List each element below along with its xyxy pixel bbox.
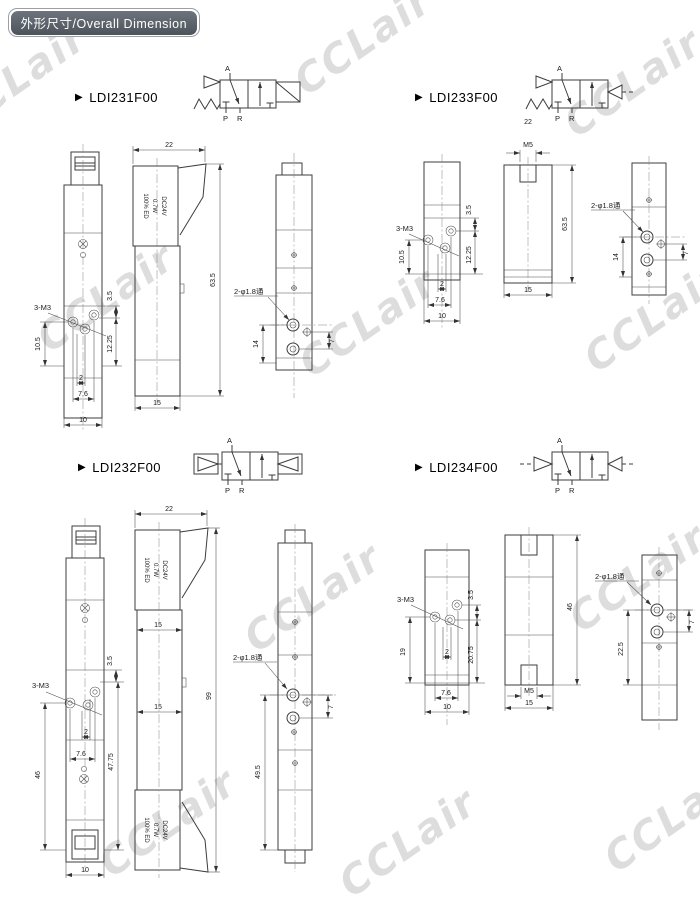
dim-hole-offset: 3.5: [468, 590, 475, 600]
dim-height-total: 99: [206, 692, 213, 700]
dim-width-front: 10: [443, 704, 451, 711]
coil-power: 0.7W: [151, 199, 157, 213]
dim-port-span: 14: [613, 253, 620, 261]
coil-label: DC24V 0.7W 100% ED: [142, 193, 166, 219]
dim-hole-offset: 3.5: [466, 205, 473, 215]
valve-body: [552, 445, 608, 485]
bullet-triangle-icon: ▶: [78, 463, 86, 473]
dim-mount-thread: 3-M3: [396, 224, 413, 233]
dim-mount-left: 10.5: [35, 337, 42, 351]
dim-pilot-thread: M5: [524, 688, 534, 695]
dim-port-note: 2-φ1.8通: [234, 286, 264, 296]
dim-height-total: 63.5: [562, 217, 569, 231]
coil-voltage: DC24V: [161, 820, 167, 839]
pilot-spring-actuator: [526, 76, 552, 109]
side-view: M5 63.5 15: [504, 142, 576, 298]
dim-hole-gap: 2: [440, 281, 444, 288]
model-label-ldi234f00: ▶ LDI234F00: [415, 460, 498, 475]
pilot-spring-actuator: [194, 76, 220, 109]
bullet-triangle-icon: ▶: [415, 93, 423, 103]
dim-width-top: 22: [524, 119, 532, 126]
dim-hole-gap: 2: [445, 649, 449, 656]
coil-duty: 100% ED: [143, 557, 149, 583]
coil-voltage: DC24V: [160, 196, 166, 215]
port-p-label: P: [555, 486, 560, 495]
dim-width-front: 10: [81, 867, 89, 874]
dim-mount-right: 12.25: [107, 335, 114, 353]
port-p-label: P: [225, 486, 230, 495]
side-view: 22 DC24V 0.7W 100% ED 15 15 DC24V 0.7W 1…: [135, 506, 220, 878]
dim-mount-right: 12.25: [466, 246, 473, 264]
solenoid-pilot-actuator-right: [278, 454, 302, 474]
dim-port-gap: 7: [689, 620, 696, 624]
coil-duty: 100% ED: [143, 817, 149, 843]
port-r-label: R: [569, 486, 575, 495]
front-view: 3-M3 3.5 2 7.6 46 47.75 10: [32, 518, 124, 878]
port-r-label: R: [239, 486, 245, 495]
coil-power: 0.7W: [152, 563, 158, 577]
dim-mount-right: 47.75: [108, 753, 115, 771]
dim-mount-thread: 3-M3: [34, 303, 51, 312]
dim-hole-gap: 2: [79, 375, 83, 382]
dim-port-gap: 7: [329, 339, 336, 343]
dim-depth: 15: [153, 400, 161, 407]
front-view: 3-M3 3.5 10.5 12.25 2 7.6 10: [396, 154, 483, 330]
solenoid-actuator: [276, 82, 300, 102]
bullet-triangle-icon: ▶: [415, 463, 423, 473]
dim-port-gap: 7: [328, 705, 335, 709]
dim-mount-left: 19: [400, 648, 407, 656]
dim-hole-offset: 3.5: [107, 656, 114, 666]
dim-mount-right: 20.75: [468, 646, 475, 664]
coil-duty: 100% ED: [142, 193, 148, 219]
model-name: LDI233F00: [429, 90, 498, 105]
valve-body: [220, 73, 276, 113]
model-label-ldi232f00: ▶ LDI232F00: [78, 460, 161, 475]
dim-mount-left: 46: [35, 771, 42, 779]
bottom-port-view: 2-φ1.8通 14 7: [234, 153, 336, 398]
front-view: 3-M3 3.5 19 20.75 2 7.6 10: [397, 543, 485, 725]
dim-width-front: 10: [79, 417, 87, 424]
model-label-ldi231f00: ▶ LDI231F00: [75, 90, 158, 105]
dim-depth-lower: 15: [154, 704, 162, 711]
air-pilot-actuator: [608, 85, 636, 99]
dim-height-total: 63.5: [210, 273, 217, 287]
drawing-ldi234f00: 3-M3 3.5 19 20.75 2 7.6 10: [395, 525, 700, 760]
drawing-ldi232f00: 3-M3 3.5 2 7.6 46 47.75 10 22: [28, 500, 373, 900]
dim-hole-span: 7.6: [435, 297, 445, 304]
dim-depth: 15: [524, 287, 532, 294]
dim-port-span: 49.5: [255, 765, 262, 779]
dim-mount-thread: 3-M3: [397, 595, 414, 604]
dim-width-front: 10: [438, 313, 446, 320]
coil-label-lower: DC24V 0.7W 100% ED: [143, 817, 167, 843]
drawing-ldi231f00: 3-M3 3.5 10.5 12.25 2 7.6 10 22: [28, 138, 373, 438]
dim-depth-upper: 15: [154, 622, 162, 629]
valve-symbol-ldi231f00: A P R: [180, 66, 312, 124]
section-header-label: 外形尺寸/Overall Dimension: [11, 11, 198, 35]
bottom-port-view: 2-φ1.8通 7 22.5: [595, 547, 696, 730]
air-pilot-actuator-right: [608, 457, 636, 471]
dim-hole-offset: 3.5: [107, 291, 114, 301]
dim-port-span: 14: [253, 340, 260, 348]
valve-body: [222, 445, 278, 485]
bullet-triangle-icon: ▶: [75, 93, 83, 103]
dim-port-gap: 7: [683, 251, 690, 255]
side-view: M5 15 46: [505, 527, 581, 711]
model-label-ldi233f00: ▶ LDI233F00: [415, 90, 498, 105]
air-pilot-actuator-left: [520, 457, 552, 471]
front-view: 3-M3 3.5 10.5 12.25 2 7.6 10: [34, 144, 122, 430]
model-name: LDI232F00: [92, 460, 161, 475]
drawing-ldi233f00: 22 3-M3 3.5 10.5 12.25 2 7.6: [395, 112, 700, 362]
dim-width-top: 22: [165, 506, 173, 513]
model-name: LDI234F00: [429, 460, 498, 475]
coil-voltage: DC24V: [161, 560, 167, 579]
catalog-page: CCLair CCLair CCLair CCLair CCLair CCLai…: [0, 0, 700, 900]
dim-port-note: 2-φ1.8通: [233, 652, 263, 662]
port-r-label: R: [237, 114, 243, 123]
dim-hole-span: 7.6: [78, 391, 88, 398]
dim-port-span: 22.5: [618, 642, 625, 656]
watermark: CCLair: [596, 754, 700, 882]
valve-symbol-ldi232f00: A P R: [182, 438, 314, 496]
port-a-label: A: [557, 64, 562, 73]
port-a-label: A: [557, 436, 562, 445]
valve-body: [552, 73, 608, 113]
dim-width-top: 22: [165, 142, 173, 149]
dim-pilot-thread: M5: [523, 142, 533, 149]
side-view: 22 DC24V 0.7W 100% ED 63.5 15: [133, 142, 224, 411]
coil-label-upper: DC24V 0.7W 100% ED: [143, 557, 167, 583]
dim-port-note: 2-φ1.8通: [591, 200, 621, 210]
port-p-label: P: [223, 114, 228, 123]
dim-depth: 15: [525, 700, 533, 707]
bottom-port-view: 2-φ1.8通 14 7: [591, 156, 690, 304]
model-name: LDI231F00: [89, 90, 158, 105]
dim-mount-left: 10.5: [399, 250, 406, 264]
solenoid-pilot-actuator-left: [194, 454, 222, 474]
section-header-badge: 外形尺寸/Overall Dimension: [8, 8, 200, 37]
dim-hole-gap: 2: [84, 729, 88, 736]
valve-symbol-ldi234f00: A P R: [512, 438, 644, 496]
dim-port-note: 2-φ1.8通: [595, 571, 625, 581]
dim-hole-span: 7.6: [76, 751, 86, 758]
port-a-label: A: [225, 64, 230, 73]
coil-power: 0.7W: [152, 823, 158, 837]
bottom-port-view: 2-φ1.8通 7 49.5: [233, 524, 336, 872]
dim-mount-thread: 3-M3: [32, 681, 49, 690]
dim-height-total: 46: [567, 603, 574, 611]
dim-hole-span: 7.6: [441, 690, 451, 697]
